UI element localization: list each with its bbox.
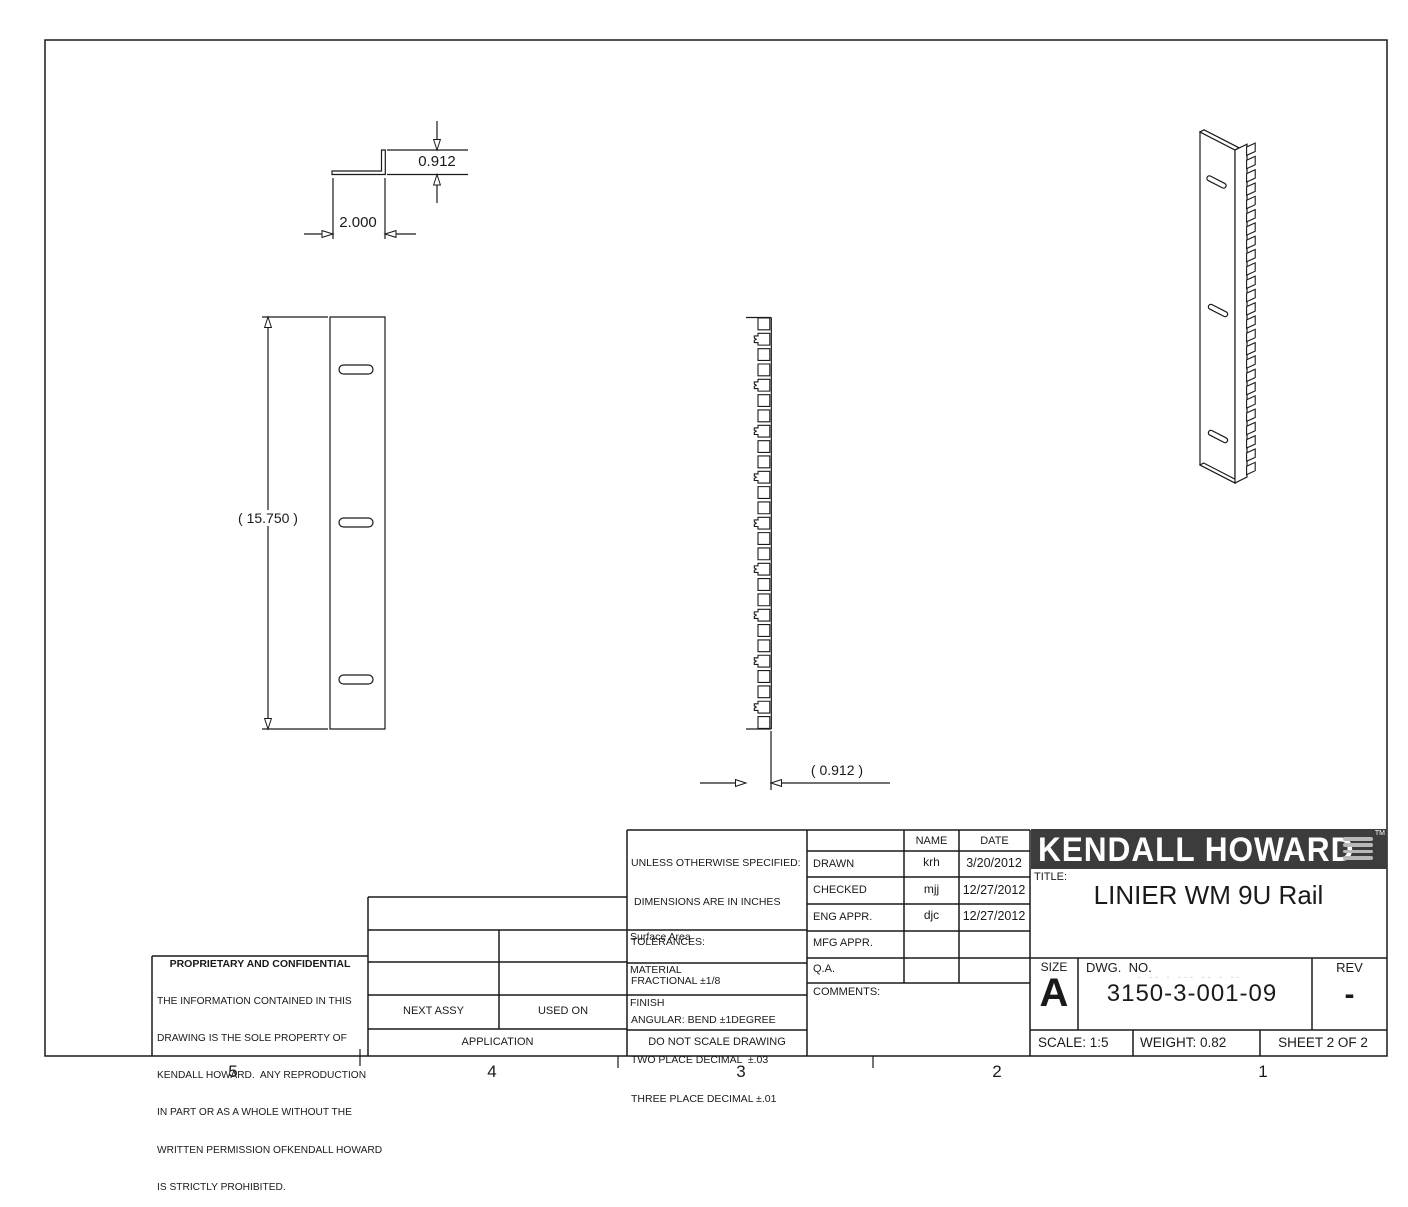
approval-row-label: MFG APPR. xyxy=(813,937,873,950)
approval-row-name: djc xyxy=(904,909,959,923)
drawing-title: LINIER WM 9U Rail xyxy=(1030,881,1387,911)
approval-row-name: mjj xyxy=(904,883,959,897)
dim-flange-width: 2.000 xyxy=(328,214,388,231)
dim-lip-height: 0.912 xyxy=(407,153,467,170)
approval-row-date: 12/27/2012 xyxy=(955,883,1033,897)
proprietary-body: THE INFORMATION CONTAINED IN THIS DRAWIN… xyxy=(157,971,382,1207)
logo-text: KENDALL HOWARD xyxy=(1038,831,1354,870)
next-assy-label: NEXT ASSY xyxy=(368,1005,499,1018)
date-header: DATE xyxy=(959,835,1030,848)
kendall-howard-logo: KENDALL HOWARD TM xyxy=(1031,829,1387,869)
trademark-symbol: TM xyxy=(1375,830,1385,837)
finish-label: FINISH xyxy=(630,997,664,1009)
approval-row-date: 12/27/2012 xyxy=(955,909,1033,923)
approval-row-date: 3/20/2012 xyxy=(955,856,1033,870)
dwg-no-value: 3150-3-001-09 xyxy=(1082,980,1302,1008)
tolerance-line: DIMENSIONS ARE IN INCHES xyxy=(631,896,801,909)
proprietary-line: WRITTEN PERMISSION OFKENDALL HOWARD xyxy=(157,1145,382,1157)
approval-row-label: CHECKED xyxy=(813,884,867,897)
side-view xyxy=(700,318,890,791)
isometric-hole-teeth xyxy=(1247,143,1256,475)
proprietary-line: KENDALL HOWARD. ANY REPRODUCTION xyxy=(157,1070,382,1082)
rev-label: REV xyxy=(1312,961,1387,976)
approval-row-name: krh xyxy=(904,856,959,870)
proprietary-line: IN PART OR AS A WHOLE WITHOUT THE xyxy=(157,1107,382,1119)
dim-overall-length: ( 15.750 ) xyxy=(226,510,310,526)
proprietary-heading: PROPRIETARY AND CONFIDENTIAL xyxy=(152,958,368,970)
scale-value: SCALE: 1:5 xyxy=(1038,1035,1109,1051)
comments-label: COMMENTS: xyxy=(813,986,880,999)
name-header: NAME xyxy=(904,835,959,848)
zone-label-2: 2 xyxy=(977,1062,1017,1082)
drawing-sheet: { "sheet": { "zone_labels": ["5", "4", "… xyxy=(0,0,1408,1088)
size-value: A xyxy=(1030,970,1078,1016)
zone-label-1: 1 xyxy=(1243,1062,1283,1082)
tolerance-line: UNLESS OTHERWISE SPECIFIED: xyxy=(631,857,801,870)
approval-row-label: Q.A. xyxy=(813,963,835,976)
rev-value: - xyxy=(1312,978,1387,1013)
tolerance-line: ANGULAR: BEND ±1DEGREE xyxy=(631,1014,801,1027)
stacked-bars-icon xyxy=(1343,837,1373,860)
tolerance-line: FRACTIONAL ±1/8 xyxy=(631,975,801,988)
proprietary-line: IS STRICTLY PROHIBITED. xyxy=(157,1182,382,1194)
approval-row-label: DRAWN xyxy=(813,858,854,871)
tolerance-line: TWO PLACE DECIMAL ±.03 xyxy=(631,1054,801,1067)
isometric-view xyxy=(1200,130,1255,483)
proprietary-line: DRAWING IS THE SOLE PROPERTY OF xyxy=(157,1033,382,1045)
side-view-square-holes xyxy=(754,318,770,728)
approval-row-label: ENG APPR. xyxy=(813,911,872,924)
weight-value: WEIGHT: 0.82 xyxy=(1140,1035,1226,1051)
do-not-scale-label: DO NOT SCALE DRAWING xyxy=(627,1036,807,1049)
used-on-label: USED ON xyxy=(499,1005,627,1018)
sheet-value: SHEET 2 OF 2 xyxy=(1262,1035,1384,1051)
material-label: MATERIAL xyxy=(630,964,682,976)
surface-area-label: Surface Area xyxy=(630,931,691,943)
tolerance-line: THREE PLACE DECIMAL ±.01 xyxy=(631,1093,801,1106)
dim-side-width: ( 0.912 ) xyxy=(795,762,879,778)
zone-label-4: 4 xyxy=(472,1062,512,1082)
application-label: APPLICATION xyxy=(368,1036,627,1049)
proprietary-line: THE INFORMATION CONTAINED IN THIS xyxy=(157,996,382,1008)
